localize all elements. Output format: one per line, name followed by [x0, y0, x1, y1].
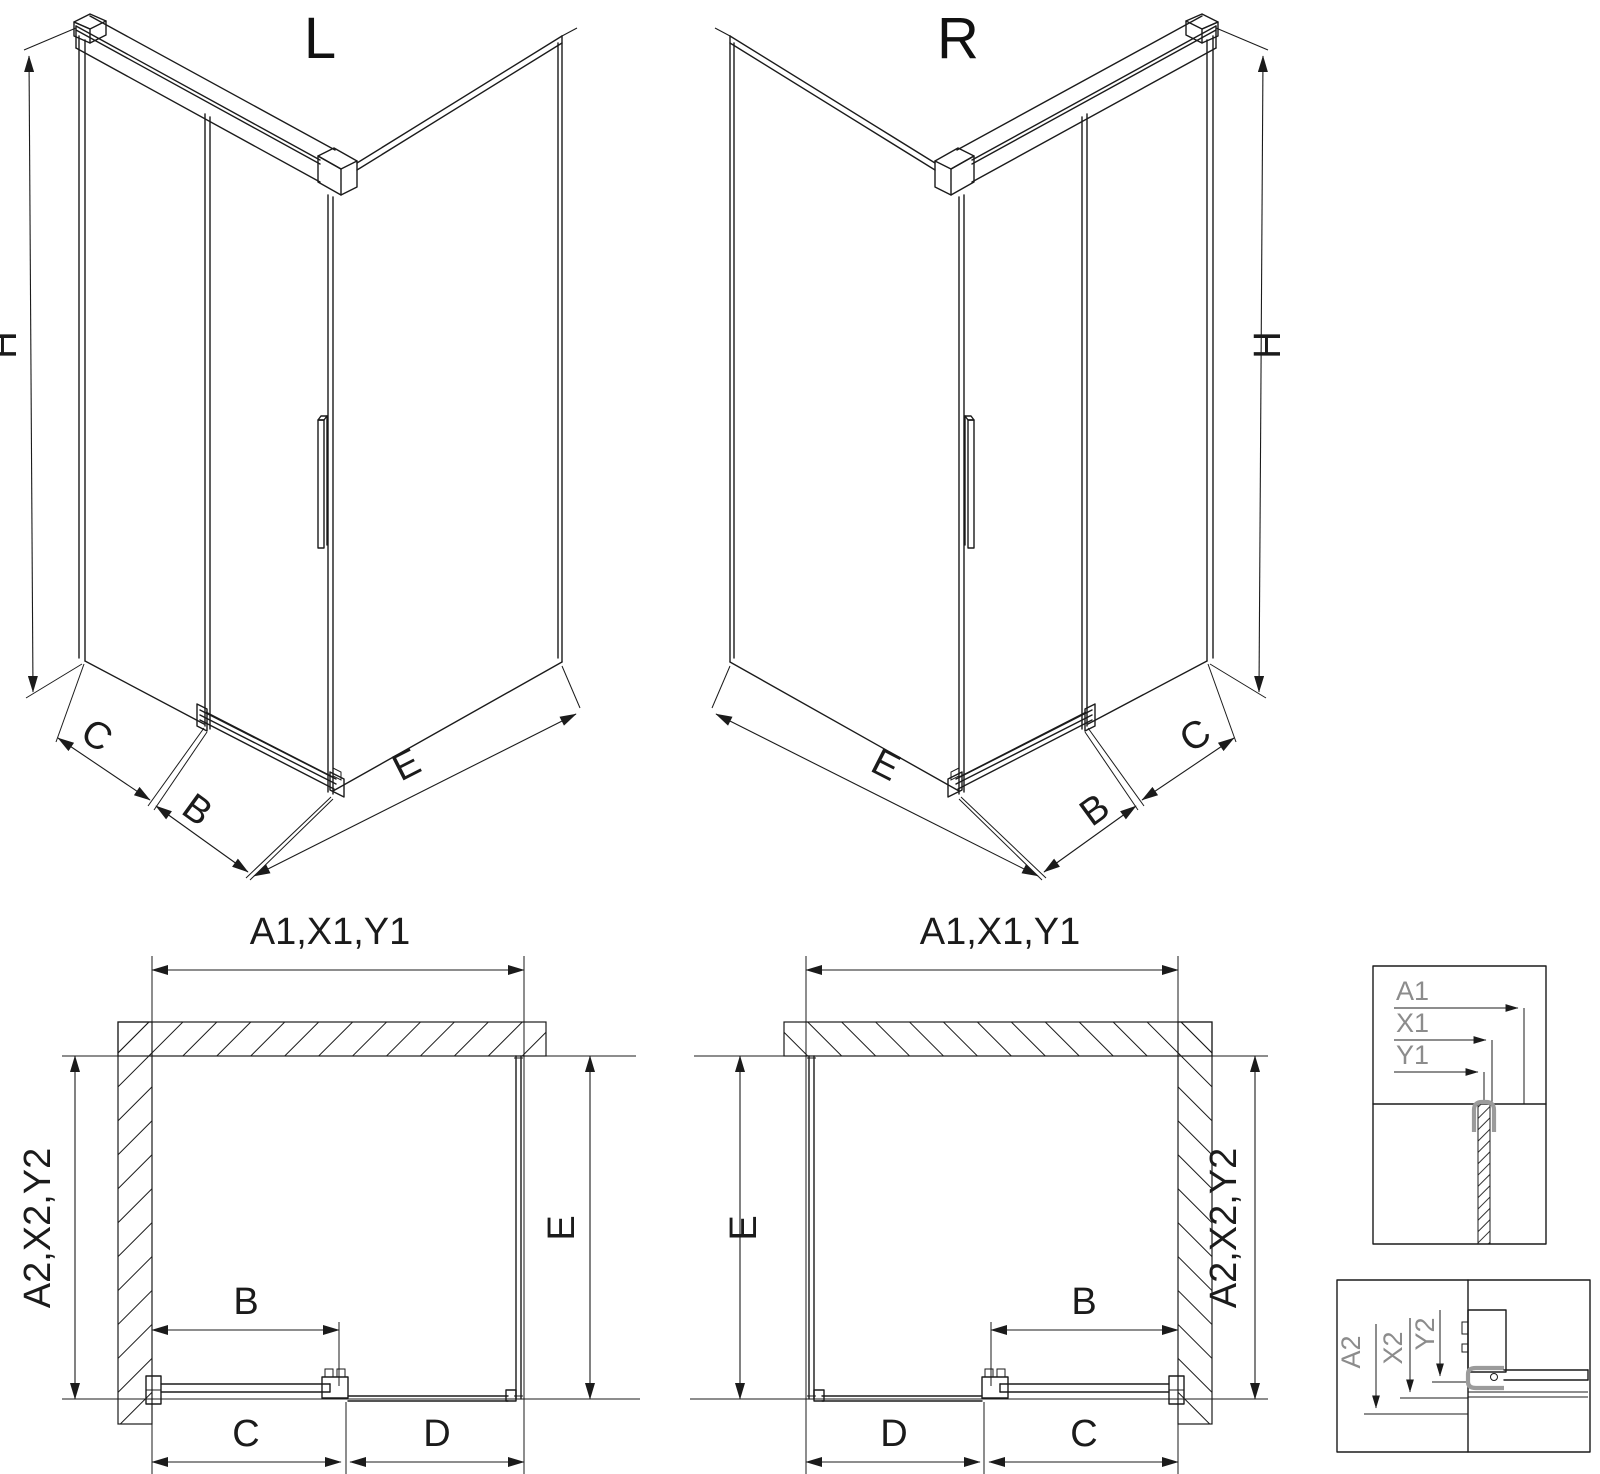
variant-right-title: R	[937, 6, 979, 71]
dim-label-height-left: H	[0, 331, 25, 358]
plan-right-door-dim: B	[1071, 1281, 1096, 1323]
plan-left-bottom-outer-dim: D	[423, 1413, 450, 1455]
glass-holder-profile	[1468, 1368, 1504, 1388]
plan-left-bottom-inner-dim: C	[232, 1413, 259, 1455]
detail-vertical-section: A2 X2 Y2	[1336, 1280, 1590, 1452]
detail-top-label-y1: Y1	[1396, 1040, 1429, 1070]
plan-right-lineart	[690, 956, 1268, 1474]
dim-label-door-left: B	[174, 786, 219, 835]
iso-right-lineart	[712, 14, 1268, 880]
iso-left-drawing: L H C B E	[0, 6, 580, 880]
detail-bottom-label-a2: A2	[1336, 1335, 1366, 1368]
dim-label-height-right: H	[1247, 331, 1289, 358]
plan-right-top-dim: A1,X1,Y1	[920, 911, 1081, 953]
plan-right-drawing: A1,X1,Y1 E A2,X2,Y2 B D C	[690, 911, 1268, 1474]
dim-label-fixed-wall-right: E	[865, 741, 907, 790]
plan-left-drawing: A1,X1,Y1 A2,X2,Y2 E B C D	[17, 911, 640, 1474]
dim-label-door-right: B	[1072, 786, 1117, 835]
plan-right-left-dim: E	[723, 1215, 765, 1240]
detail-horizontal-section: A1 X1 Y1	[1373, 966, 1546, 1244]
detail-bottom-label-x2: X2	[1378, 1331, 1408, 1364]
technical-drawing-page: L H C B E R H C B E A1,X1,Y1 A2,X2,Y2 E …	[0, 0, 1600, 1474]
detail-top-label-x1: X1	[1396, 1008, 1429, 1038]
plan-left-top-dim: A1,X1,Y1	[250, 911, 411, 953]
shower-enclosure-diagram: L H C B E R H C B E A1,X1,Y1 A2,X2,Y2 E …	[0, 0, 1600, 1474]
detail-bottom-label-y2: Y2	[1410, 1317, 1440, 1350]
plan-right-bottom-outer-dim: D	[880, 1413, 907, 1455]
iso-right-drawing: R H C B E	[712, 6, 1289, 880]
plan-left-left-dim: A2,X2,Y2	[17, 1148, 59, 1309]
dim-label-fixed-wall-left: E	[386, 741, 428, 790]
plan-left-right-dim: E	[541, 1215, 583, 1240]
plan-right-right-dim: A2,X2,Y2	[1203, 1148, 1245, 1309]
plan-right-bottom-inner-dim: C	[1070, 1413, 1097, 1455]
variant-left-title: L	[304, 6, 336, 71]
plan-left-door-dim: B	[233, 1281, 258, 1323]
detail-top-label-a1: A1	[1396, 976, 1429, 1006]
